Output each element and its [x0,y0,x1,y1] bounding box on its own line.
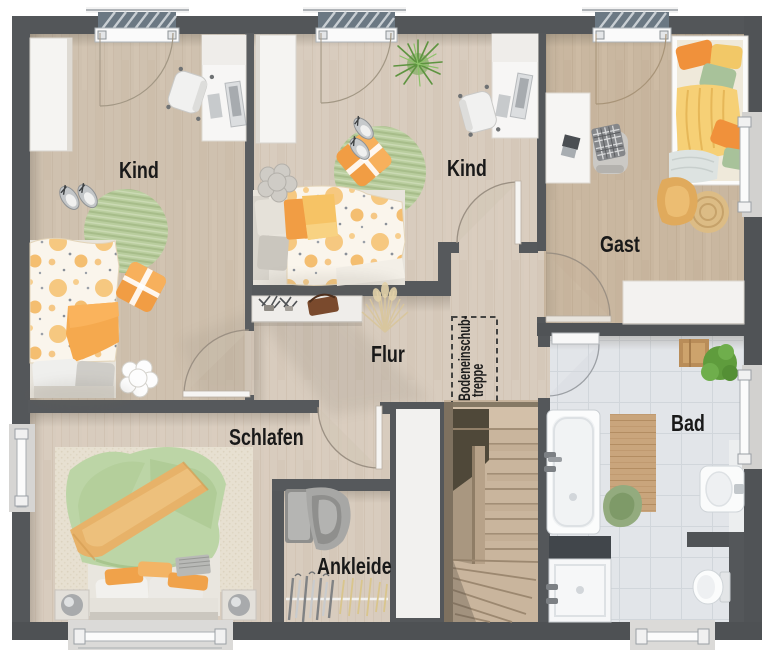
svg-text:Flur: Flur [371,342,405,368]
svg-text:Kind: Kind [119,158,159,184]
svg-text:Bad: Bad [671,411,705,437]
svg-text:Schlafen: Schlafen [229,425,304,451]
svg-text:Ankleide: Ankleide [317,554,392,580]
svg-text:treppe: treppe [468,364,487,397]
svg-text:Gast: Gast [600,232,640,258]
svg-text:Kind: Kind [447,156,487,182]
